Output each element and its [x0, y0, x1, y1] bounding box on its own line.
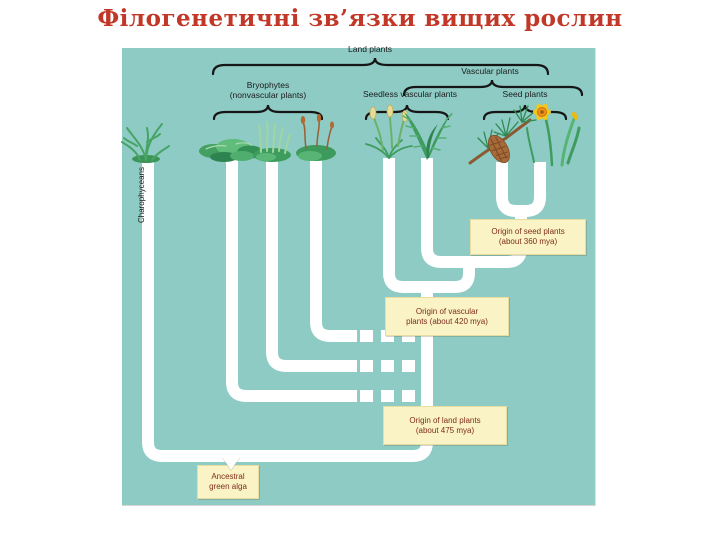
seed-plants-label: Seed plants: [465, 90, 585, 100]
origin-of-land-plants-callout: Origin of land plants (about 475 mya): [383, 406, 507, 445]
hornwort-icon: [253, 122, 291, 162]
liverwort-icon: [199, 139, 263, 162]
presentation-slide: Філогенетичні зв’язки вищих рослин: [0, 0, 720, 540]
origin-of-vascular-plants-callout: Origin of vascular plants (about 420 mya…: [385, 297, 509, 336]
ancestral-alga-callout-tail: [222, 457, 240, 470]
origin-of-land-plants-line2: (about 475 mya): [384, 426, 506, 436]
moss-icon: [296, 114, 336, 161]
phylogenetic-tree: [0, 0, 720, 540]
moss-branch: [316, 158, 357, 336]
seed-plants-brace: [484, 105, 566, 119]
seedless-vascular-plants-label: Seedless vascular plants: [340, 90, 480, 100]
ancestral-green-alga-line2: green alga: [198, 482, 258, 492]
seed-plants-branch: [502, 162, 540, 211]
charophyceans-label: Charophyceans: [104, 158, 178, 232]
ancestral-green-alga-callout: Ancestral green alga: [197, 465, 259, 499]
origin-of-seed-plants-line2: (about 360 mya): [471, 237, 585, 247]
origin-of-seed-plants-callout: Origin of seed plants (about 360 mya): [470, 219, 586, 255]
pine-branch-cone-icon: [470, 106, 536, 166]
ancestral-green-alga-line1: Ancestral: [198, 472, 258, 482]
origin-of-vascular-plants-line2: plants (about 420 mya): [386, 317, 508, 327]
origin-of-vascular-plants-line1: Origin of vascular: [386, 307, 508, 317]
origin-of-seed-plants-line1: Origin of seed plants: [471, 227, 585, 237]
bryophytes-label: Bryophytes (nonvascular plants): [198, 81, 338, 100]
bryophytes-brace: [214, 105, 322, 119]
origin-of-land-plants-line1: Origin of land plants: [384, 416, 506, 426]
land-plants-label: Land plants: [310, 45, 430, 55]
fern-icon: [403, 112, 452, 160]
vascular-plants-label: Vascular plants: [430, 67, 550, 77]
bryophytes-label-line2: (nonvascular plants): [198, 91, 338, 101]
